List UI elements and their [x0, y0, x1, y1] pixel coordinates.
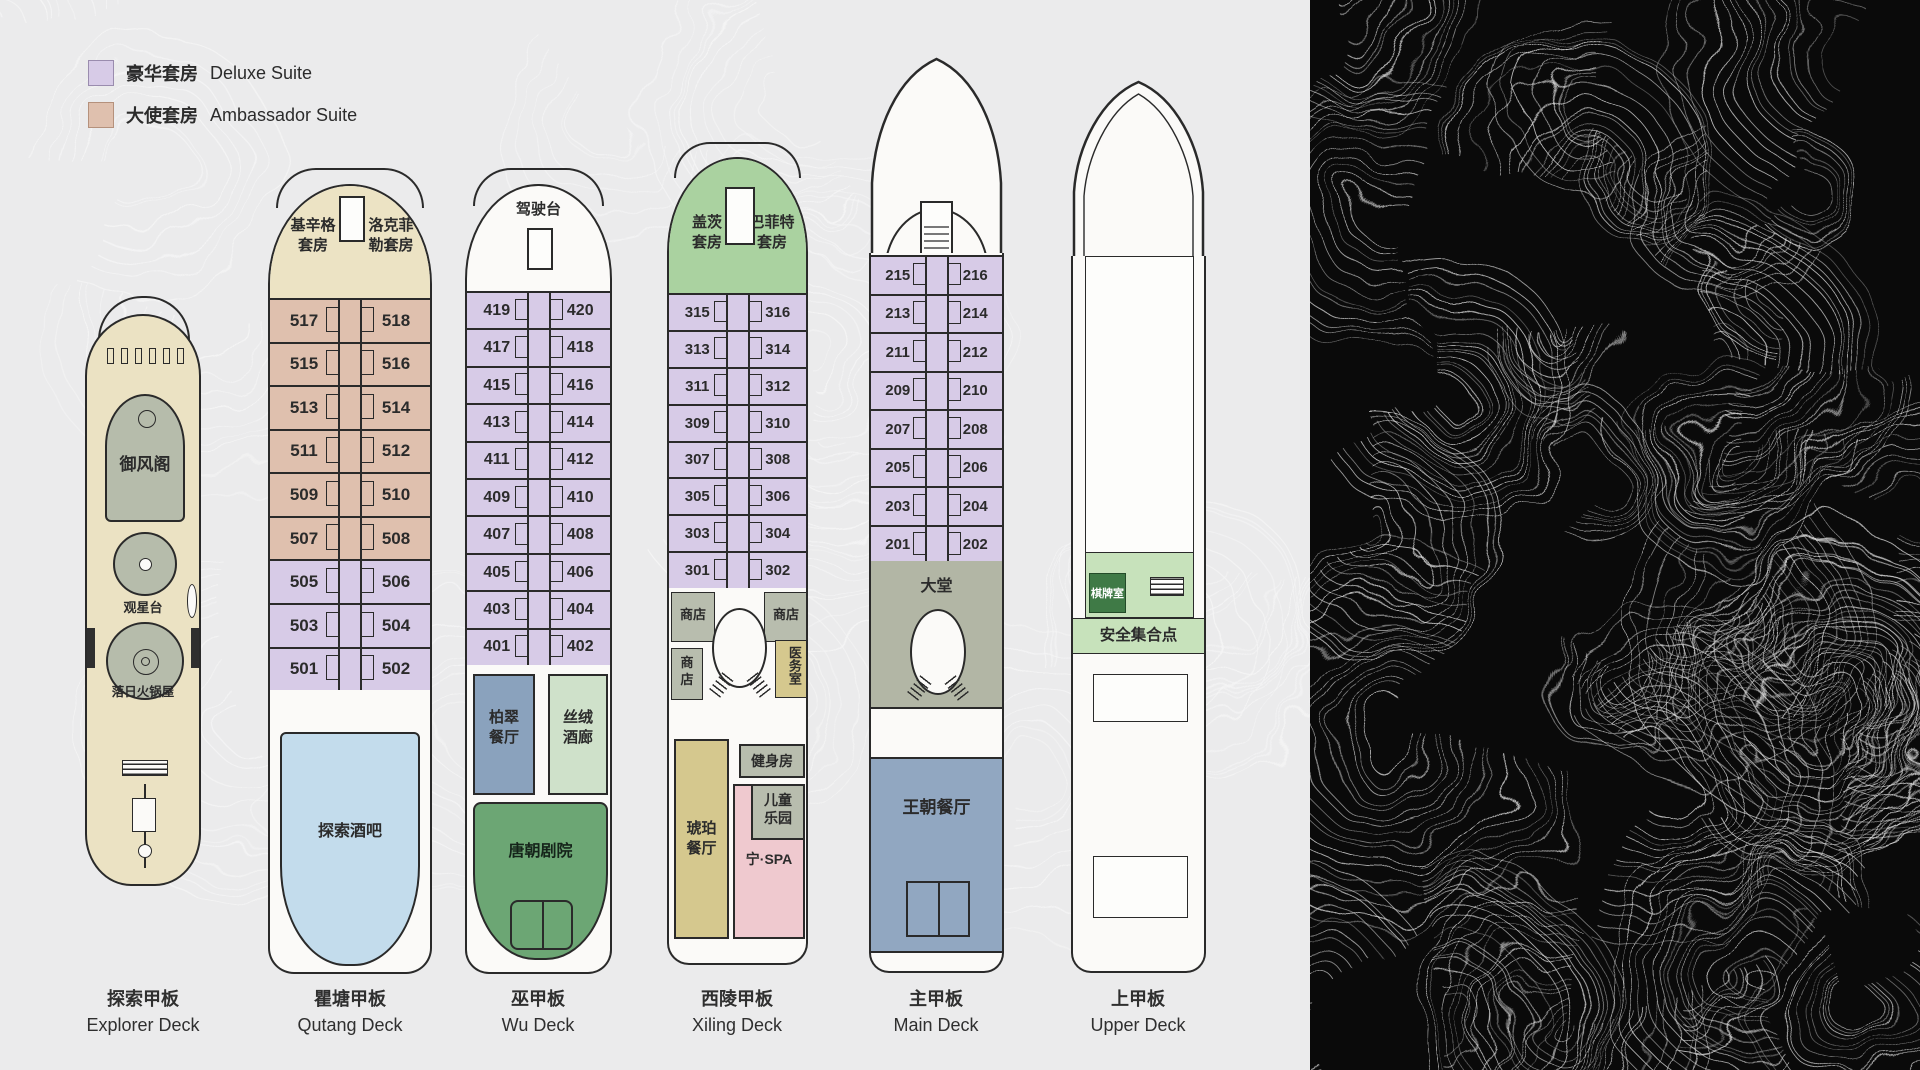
cabin-number: 514 — [362, 387, 430, 429]
main-hull: 2152162132142112122092102072082052062032… — [869, 253, 1004, 973]
decorative-art-panel — [1310, 0, 1920, 1070]
shop-top-left: 商店 — [671, 592, 715, 642]
deck-name-en: Upper Deck — [1048, 1015, 1228, 1036]
cabin-number: 309 — [669, 406, 726, 441]
corridor — [726, 479, 750, 514]
cabin-row: 505506 — [270, 559, 430, 603]
shop-label: 商 店 — [672, 655, 702, 689]
lifeboat — [187, 584, 197, 618]
corridor — [527, 368, 551, 403]
vent — [149, 348, 156, 364]
cabin-number: 304 — [750, 516, 807, 551]
upper-hull: 棋牌室 安全集合点 — [1071, 256, 1206, 973]
corridor — [338, 431, 362, 473]
cabin-number: 516 — [362, 344, 430, 386]
corridor — [527, 330, 551, 365]
cabin-row: 303304 — [669, 514, 806, 551]
corridor — [527, 405, 551, 440]
atrium-zone: 商店 商店 商 店 医务室 — [669, 588, 806, 714]
pointed-bow — [1071, 78, 1206, 258]
cabin-number: 506 — [362, 561, 430, 603]
stern-box — [1093, 856, 1188, 918]
cabin-row: 509510 — [270, 472, 430, 516]
deckhouse-box — [1093, 674, 1188, 722]
emerald-restaurant-label: 柏翠 餐厅 — [475, 708, 533, 747]
cabin-number: 311 — [669, 369, 726, 404]
hotpot-core — [141, 657, 150, 666]
cabin-number: 216 — [949, 257, 1003, 294]
cabin-number: 415 — [467, 368, 527, 403]
cabin-number: 508 — [362, 518, 430, 560]
deck-label-main: 主甲板 Main Deck — [846, 985, 1026, 1036]
deck-label-xiling: 西陵甲板 Xiling Deck — [647, 985, 827, 1036]
cabin-number: 206 — [949, 450, 1003, 487]
kids-club: 儿童 乐园 — [751, 784, 805, 840]
cabin-number: 205 — [871, 450, 925, 487]
cabin-number: 312 — [750, 369, 807, 404]
named-suites-zone: 基辛格 套房 洛克菲 勒套房 — [270, 186, 430, 300]
cabin-row: 513514 — [270, 385, 430, 429]
cabin-number: 211 — [871, 334, 925, 371]
cabin-row: 211212 — [871, 332, 1002, 371]
cabin-number: 418 — [551, 330, 611, 365]
qutang-hull: 基辛格 套房 洛克菲 勒套房 5175185155165135145115125… — [268, 184, 432, 974]
stairwell — [339, 196, 365, 242]
cabin-number: 518 — [362, 300, 430, 342]
cabin-number: 305 — [669, 479, 726, 514]
cabin-number: 313 — [669, 332, 726, 367]
cabin-row: 401402 — [467, 628, 610, 665]
corridor — [527, 630, 551, 665]
corridor — [338, 474, 362, 516]
deck-wu: 驾驶台 419420417418415416413414411412409410… — [465, 168, 612, 980]
cabin-number: 513 — [270, 387, 338, 429]
corridor — [338, 605, 362, 647]
davit-left — [86, 628, 95, 668]
vent — [163, 348, 170, 364]
spa-label: 宁·SPA — [735, 850, 803, 868]
deck-label-wu: 巫甲板 Wu Deck — [448, 985, 628, 1036]
superstructure-outline — [1085, 256, 1194, 556]
lobby-label: 大堂 — [871, 577, 1002, 598]
rockefeller-suite-label: 洛克菲 勒套房 — [358, 216, 424, 255]
muster-band: 安全集合点 — [1073, 618, 1204, 654]
bridge-label: 驾驶台 — [467, 200, 610, 220]
cabin-number: 208 — [949, 411, 1003, 448]
amber-restaurant-label: 琥珀 餐厅 — [676, 819, 727, 858]
gym: 健身房 — [739, 744, 805, 778]
stargazing-label: 观星台 — [87, 600, 199, 617]
lobby-stairs-right — [943, 673, 969, 701]
cabin-row: 301302 — [669, 551, 806, 588]
deck-explorer: 御风阁 观星台 落日火锅屋 — [84, 296, 204, 896]
wind-pavilion-room: 御风阁 — [105, 394, 185, 522]
muster-green-block: 棋牌室 — [1085, 552, 1194, 618]
cabin-row: 411412 — [467, 441, 610, 478]
cabin-number: 504 — [362, 605, 430, 647]
wu-cabin-grid: 4194204174184154164134144114124094104074… — [467, 293, 610, 665]
cabin-number: 310 — [750, 406, 807, 441]
cabin-row: 511512 — [270, 429, 430, 473]
cabin-number: 315 — [669, 295, 726, 330]
shop-label: 商店 — [672, 607, 714, 624]
deck-label-upper: 上甲板 Upper Deck — [1048, 985, 1228, 1036]
deck-upper: 棋牌室 安全集合点 — [1071, 78, 1206, 975]
cabin-number: 417 — [467, 330, 527, 365]
corridor — [925, 257, 949, 294]
cabin-number: 507 — [270, 518, 338, 560]
corridor — [527, 293, 551, 328]
cabin-number: 419 — [467, 293, 527, 328]
cabin-row: 207208 — [871, 409, 1002, 448]
xiling-hull: 盖茨 套房 巴菲特 套房 315316313314311312309310307… — [667, 157, 808, 965]
wu-hull: 驾驶台 419420417418415416413414411412409410… — [465, 184, 612, 974]
cabin-row: 215216 — [871, 257, 1002, 294]
muster-stairs — [1150, 577, 1184, 596]
cabin-row: 417418 — [467, 328, 610, 365]
corridor — [726, 295, 750, 330]
corridor — [527, 480, 551, 515]
corridor — [338, 518, 362, 560]
corridor — [527, 517, 551, 552]
cabin-number: 301 — [669, 553, 726, 588]
deck-name-en: Wu Deck — [448, 1015, 628, 1036]
legend-label-en: Ambassador Suite — [210, 105, 357, 126]
corridor — [726, 369, 750, 404]
cabin-number: 207 — [871, 411, 925, 448]
cabin-row: 501502 — [270, 647, 430, 691]
deck-name-en: Explorer Deck — [53, 1015, 233, 1036]
cabin-number: 201 — [871, 527, 925, 564]
shop-mid-left: 商 店 — [671, 648, 703, 700]
vent — [121, 348, 128, 364]
deck-name-en: Xiling Deck — [647, 1015, 827, 1036]
cabin-number: 403 — [467, 592, 527, 627]
cabin-number: 501 — [270, 649, 338, 691]
cabin-number: 314 — [750, 332, 807, 367]
cabin-number: 414 — [551, 405, 611, 440]
amber-restaurant: 琥珀 餐厅 — [674, 739, 729, 939]
velvet-lounge: 丝绒 酒廊 — [548, 674, 608, 795]
atrium-stairs-right — [745, 670, 771, 698]
cabin-number: 420 — [551, 293, 611, 328]
corridor — [726, 406, 750, 441]
medical-label: 医务室 — [785, 646, 802, 685]
deck-qutang: 基辛格 套房 洛克菲 勒套房 5175185155165135145115125… — [268, 168, 432, 980]
stargazing-platform — [113, 532, 177, 596]
cabin-number: 213 — [871, 296, 925, 333]
corridor — [726, 332, 750, 367]
cabin-row: 209210 — [871, 371, 1002, 410]
cabin-row: 203204 — [871, 486, 1002, 525]
cabin-row: 517518 — [270, 300, 430, 342]
tang-dynasty-theater: 唐朝剧院 — [473, 802, 608, 960]
explorer-bar-label: 探索酒吧 — [282, 822, 418, 843]
cabin-number: 408 — [551, 517, 611, 552]
chess-room-label: 棋牌室 — [1091, 585, 1124, 601]
cabin-number: 212 — [949, 334, 1003, 371]
legend-label-zh: 大使套房 — [126, 102, 198, 128]
cabin-number: 209 — [871, 373, 925, 410]
cabin-row: 503504 — [270, 603, 430, 647]
cabin-number: 202 — [949, 527, 1003, 564]
corridor — [338, 561, 362, 603]
pavilion-icon — [138, 410, 156, 428]
cabin-number: 510 — [362, 474, 430, 516]
deck-label-explorer: 探索甲板 Explorer Deck — [53, 985, 233, 1036]
cabin-number: 210 — [949, 373, 1003, 410]
cabin-number: 405 — [467, 555, 527, 590]
cabin-row: 205206 — [871, 448, 1002, 487]
explorer-hull: 御风阁 观星台 落日火锅屋 — [85, 314, 201, 886]
stairwell — [527, 228, 553, 270]
cabin-number: 407 — [467, 517, 527, 552]
dynasty-restaurant: 王朝餐厅 — [871, 757, 1002, 953]
deck-xiling: 盖茨 套房 巴菲特 套房 315316313314311312309310307… — [667, 140, 808, 970]
pointed-bow — [869, 55, 1004, 255]
cabin-number: 505 — [270, 561, 338, 603]
bridge-zone: 驾驶台 — [467, 186, 610, 293]
explorer-bar: 探索酒吧 — [280, 732, 420, 966]
medical-room: 医务室 — [775, 640, 808, 698]
dynasty-restaurant-label: 王朝餐厅 — [871, 797, 1002, 819]
gym-label: 健身房 — [741, 752, 803, 770]
stairwell — [725, 187, 755, 245]
cabin-number: 406 — [551, 555, 611, 590]
cabin-number: 412 — [551, 443, 611, 478]
cabin-number: 402 — [551, 630, 611, 665]
deck-name-zh: 探索甲板 — [53, 985, 233, 1011]
deck-plan-canvas: 豪华套房 Deluxe Suite 大使套房 Ambassador Suite … — [0, 0, 1920, 1070]
shop-label: 商店 — [765, 607, 807, 624]
cabin-number: 404 — [551, 592, 611, 627]
corridor — [726, 443, 750, 478]
cabin-number: 215 — [871, 257, 925, 294]
cabin-number: 517 — [270, 300, 338, 342]
stargazing-center — [139, 558, 152, 571]
corridor — [925, 334, 949, 371]
cabin-row: 309310 — [669, 404, 806, 441]
pavilion-label: 御风阁 — [107, 454, 183, 476]
corridor — [925, 488, 949, 525]
cabin-row: 405406 — [467, 553, 610, 590]
cabin-row: 507508 — [270, 516, 430, 560]
legend-item-ambassador: 大使套房 Ambassador Suite — [88, 102, 357, 128]
corridor — [925, 296, 949, 333]
corridor — [338, 300, 362, 342]
corridor — [726, 553, 750, 588]
cabin-number: 515 — [270, 344, 338, 386]
cabin-number: 409 — [467, 480, 527, 515]
cabin-number: 307 — [669, 443, 726, 478]
qutang-cabin-grid: 5175185155165135145115125095105075085055… — [270, 300, 430, 690]
cabin-row: 315316 — [669, 295, 806, 330]
cabin-row: 409410 — [467, 478, 610, 515]
kids-club-label: 儿童 乐园 — [753, 791, 803, 827]
shop-top-right: 商店 — [764, 592, 808, 642]
deck-name-zh: 巫甲板 — [448, 985, 628, 1011]
cabin-number: 401 — [467, 630, 527, 665]
service-divider — [938, 883, 940, 935]
corridor — [338, 344, 362, 386]
cabin-row: 515516 — [270, 342, 430, 386]
cabin-number: 203 — [871, 488, 925, 525]
cabin-number: 509 — [270, 474, 338, 516]
cabin-row: 305306 — [669, 477, 806, 514]
cabin-number: 316 — [750, 295, 807, 330]
cabin-number: 416 — [551, 368, 611, 403]
deck-name-zh: 西陵甲板 — [647, 985, 827, 1011]
cabin-row: 415416 — [467, 366, 610, 403]
floral-line-art — [1310, 0, 1920, 1070]
corridor — [726, 516, 750, 551]
cabin-row: 403404 — [467, 590, 610, 627]
vent — [135, 348, 142, 364]
cabin-row: 213214 — [871, 294, 1002, 333]
velvet-lounge-label: 丝绒 酒廊 — [550, 708, 606, 747]
cabin-number: 308 — [750, 443, 807, 478]
deck-main: 2152162132142112122092102072082052062032… — [869, 55, 1004, 975]
emerald-restaurant: 柏翠 餐厅 — [473, 674, 535, 795]
cabin-number: 512 — [362, 431, 430, 473]
vent — [107, 348, 114, 364]
corridor — [925, 373, 949, 410]
xiling-cabin-grid: 3153163133143113123093103073083053063033… — [669, 295, 806, 588]
corridor — [338, 387, 362, 429]
deck-name-en: Main Deck — [846, 1015, 1026, 1036]
deck-label-qutang: 瞿塘甲板 Qutang Deck — [260, 985, 440, 1036]
cabin-row: 413414 — [467, 403, 610, 440]
cabin-number: 302 — [750, 553, 807, 588]
cabin-row: 313314 — [669, 330, 806, 367]
deck-name-zh: 瞿塘甲板 — [260, 985, 440, 1011]
muster-point-label: 安全集合点 — [1073, 626, 1204, 646]
cabin-number: 410 — [551, 480, 611, 515]
restaurant-service-area — [906, 881, 970, 937]
davit-right — [191, 628, 200, 668]
deck-name-zh: 主甲板 — [846, 985, 1026, 1011]
cabin-number: 204 — [949, 488, 1003, 525]
legend-label-en: Deluxe Suite — [210, 63, 312, 84]
cabin-number: 502 — [362, 649, 430, 691]
cabin-number: 413 — [467, 405, 527, 440]
legend-item-deluxe: 豪华套房 Deluxe Suite — [88, 60, 312, 86]
corridor — [925, 527, 949, 564]
stern-stairs — [122, 760, 168, 776]
stage-divider — [542, 902, 544, 948]
cabin-number: 411 — [467, 443, 527, 478]
stern-housing — [132, 798, 156, 832]
corridor — [338, 649, 362, 691]
deck-name-zh: 上甲板 — [1048, 985, 1228, 1011]
lobby: 大堂 — [871, 561, 1002, 709]
cabin-row: 419420 — [467, 293, 610, 328]
named-suites-zone: 盖茨 套房 巴菲特 套房 — [669, 159, 806, 295]
legend-swatch-ambassador — [88, 102, 114, 128]
corridor — [527, 443, 551, 478]
cabin-row: 311312 — [669, 367, 806, 404]
deck-name-en: Qutang Deck — [260, 1015, 440, 1036]
corridor — [925, 450, 949, 487]
corridor — [527, 592, 551, 627]
legend-label-zh: 豪华套房 — [126, 60, 198, 86]
cabin-number: 306 — [750, 479, 807, 514]
stern-capstan — [138, 844, 152, 858]
cabin-row: 407408 — [467, 515, 610, 552]
main-cabin-grid: 2152162132142112122092102072082052062032… — [871, 255, 1002, 563]
cabin-number: 214 — [949, 296, 1003, 333]
legend-swatch-deluxe — [88, 60, 114, 86]
theater-stage — [510, 900, 573, 950]
cabin-number: 503 — [270, 605, 338, 647]
cabin-number: 303 — [669, 516, 726, 551]
vent — [177, 348, 184, 364]
chess-room: 棋牌室 — [1089, 573, 1126, 613]
cabin-number: 511 — [270, 431, 338, 473]
corridor — [925, 411, 949, 448]
cabin-row: 307308 — [669, 441, 806, 478]
theater-label: 唐朝剧院 — [475, 842, 606, 863]
kissinger-suite-label: 基辛格 套房 — [280, 216, 346, 255]
hotpot-label: 落日火锅屋 — [87, 684, 199, 700]
corridor — [527, 555, 551, 590]
cabin-row: 201202 — [871, 525, 1002, 564]
